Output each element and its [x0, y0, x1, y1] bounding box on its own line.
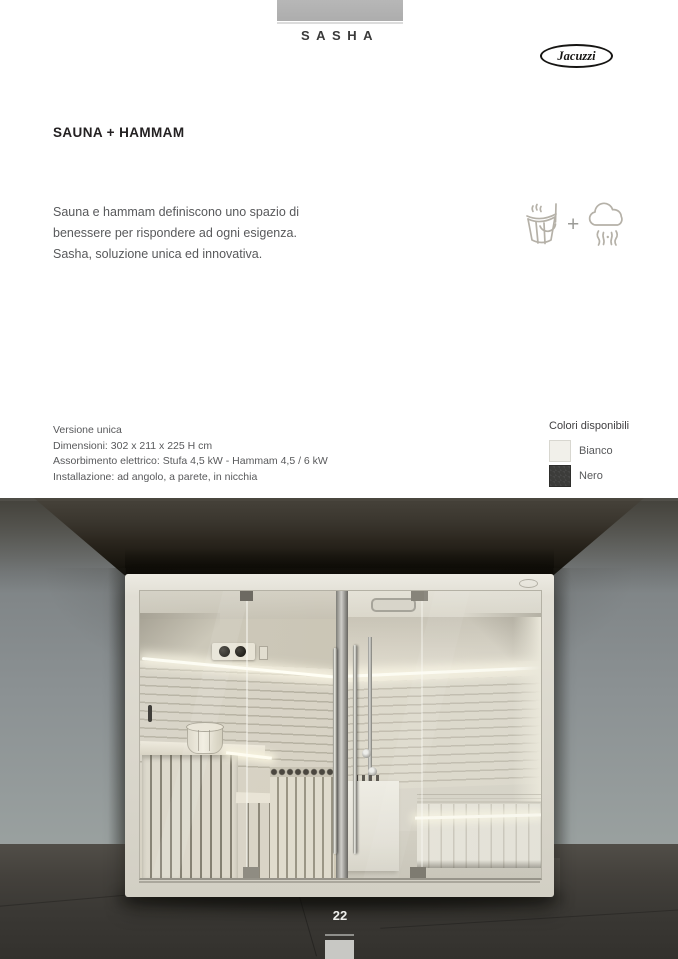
page-number: 22 [277, 908, 403, 923]
color-swatch-bianco [549, 440, 571, 462]
jacuzzi-logo-text: Jacuzzi [557, 50, 595, 63]
description-line: Sasha, soluzione unica ed innovativa. [53, 244, 343, 265]
sauna-brand-mark [519, 579, 538, 588]
header-gray-bar [277, 0, 403, 21]
steam-line [598, 231, 600, 245]
color-label: Bianco [579, 445, 613, 457]
sauna-sill-line [139, 881, 540, 883]
spec-line-dimensions: Dimensioni: 302 x 211 x 225 H cm [53, 439, 328, 455]
color-option-bianco: Bianco [549, 440, 629, 462]
door-pivot-block [243, 867, 259, 878]
sauna-glass-front [139, 590, 542, 880]
bucket-stave [536, 222, 538, 243]
product-description: Sauna e hammam definiscono uno spazio di… [53, 202, 343, 265]
glass-seam [421, 591, 423, 878]
available-colors: Colori disponibili Bianco Nero [549, 420, 629, 490]
wall-shadow-left [108, 568, 126, 844]
footer-tab [325, 940, 354, 959]
plus-sign: + [567, 214, 579, 235]
description-line: benessere per rispondere ad ogni esigenz… [53, 223, 343, 244]
tech-specs: Versione unica Dimensioni: 302 x 211 x 2… [53, 423, 328, 485]
steam-mark [540, 206, 541, 211]
sauna-cabin [125, 574, 554, 897]
bucket-stave [544, 223, 545, 244]
color-swatch-nero [549, 465, 571, 487]
steam-mark [536, 204, 537, 209]
steam-line [603, 233, 604, 245]
header-rule [277, 22, 403, 24]
glass-seam [246, 591, 248, 878]
feature-icons: + [524, 200, 628, 247]
color-option-nero: Nero [549, 465, 629, 487]
description-line: Sauna e hammam definiscono uno spazio di [53, 202, 343, 223]
cloud-outline [590, 203, 622, 225]
wall-shadow-right [553, 568, 571, 844]
steam-line [611, 233, 612, 245]
center-mullion [336, 591, 348, 878]
door-handle-right [353, 645, 357, 854]
catalog-page: SASHA Jacuzzi SAUNA + HAMMAM Sauna e ham… [0, 0, 678, 959]
steam-cloud-icon [585, 200, 628, 247]
series-title: SASHA [277, 28, 403, 43]
door-handle-left [333, 648, 337, 854]
page-title: SAUNA + HAMMAM [53, 125, 184, 140]
product-photo: 22 [0, 498, 678, 959]
door-pivot-block [410, 867, 426, 878]
spec-line-version: Versione unica [53, 423, 328, 439]
door-hinge-bracket [411, 591, 424, 601]
ladle-handle [556, 204, 557, 222]
steam-mark [532, 206, 533, 211]
jacuzzi-logo: Jacuzzi [540, 44, 613, 68]
footer-rule [325, 934, 354, 936]
steam-line [615, 231, 617, 245]
sauna-bucket-icon [524, 202, 561, 246]
steam-dot [607, 236, 609, 238]
spec-line-installation: Installazione: ad angolo, a parete, in n… [53, 470, 328, 486]
color-label: Nero [579, 470, 603, 482]
door-hinge-bracket [240, 591, 253, 601]
colors-title: Colori disponibili [549, 420, 629, 432]
spec-line-electrical: Assorbimento elettrico: Stufa 4,5 kW - H… [53, 454, 328, 470]
